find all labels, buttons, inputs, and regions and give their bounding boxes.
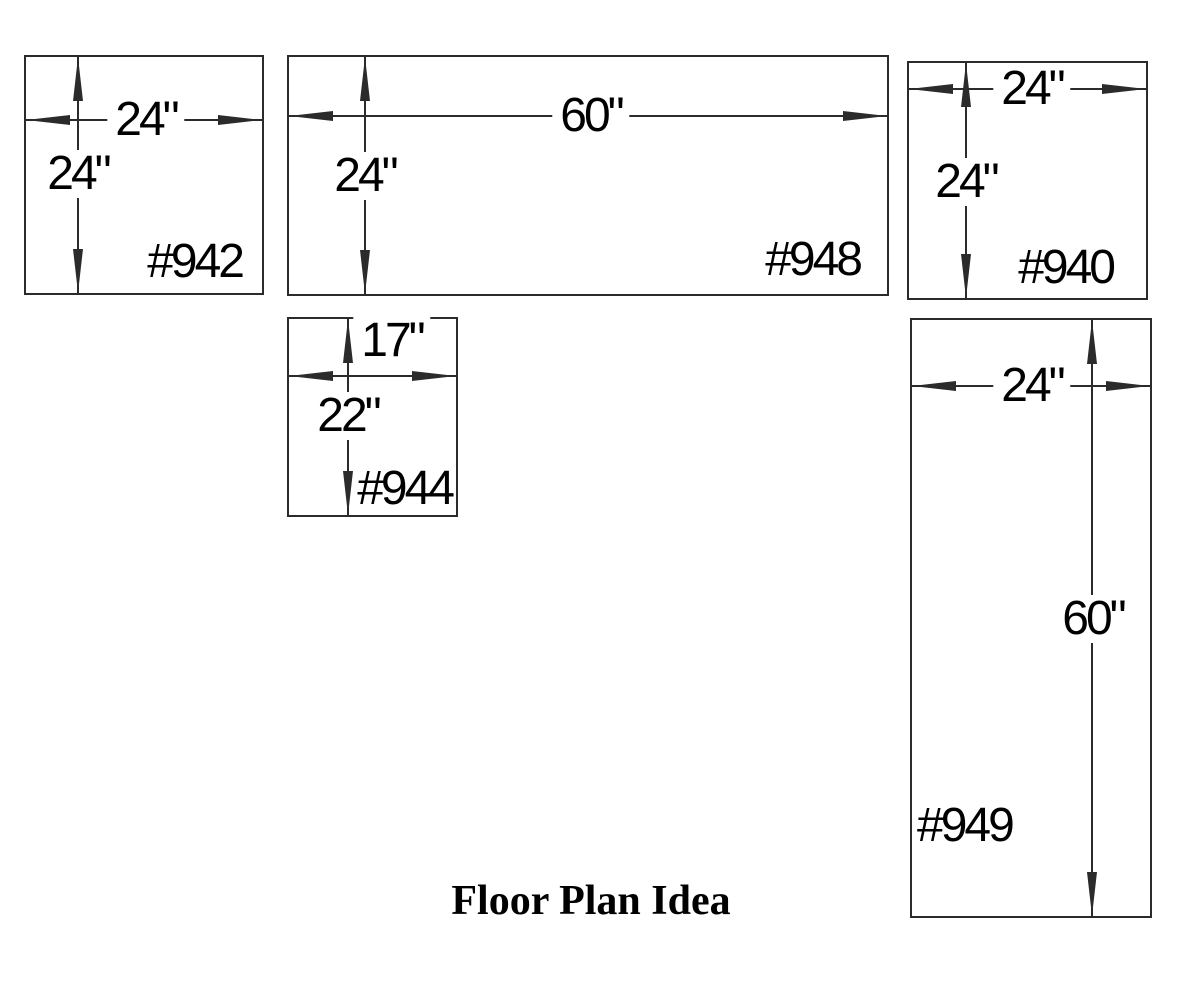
dim-arrow-left-icon [289, 111, 333, 121]
cabinet-940-height-label: 24" [927, 158, 1004, 206]
dim-arrow-up-icon [961, 63, 971, 107]
dim-arrow-up-icon [343, 319, 353, 363]
cabinet-948-width-label: 60" [552, 92, 629, 140]
dim-arrow-left-icon [909, 84, 953, 94]
cabinet-948-height-label: 24" [326, 152, 403, 200]
cabinet-942-height-label: 24" [39, 150, 116, 198]
cabinet-942-id-label: #942 [147, 238, 242, 286]
dim-arrow-up-icon [1087, 320, 1097, 364]
cabinet-940-id-label: #940 [1018, 244, 1113, 292]
cabinet-949-height-label: 60" [1054, 595, 1131, 643]
cabinet-944-id-label: #944 [357, 465, 452, 513]
page-title: Floor Plan Idea [451, 877, 730, 925]
dim-arrow-down-icon [961, 254, 971, 298]
floor-plan-canvas: 24" 24" #942 60" 24" #948 24" 24" #940 [0, 0, 1200, 1000]
dim-arrow-down-icon [343, 471, 353, 515]
dim-arrow-down-icon [73, 249, 83, 293]
cabinet-948-id-label: #948 [765, 236, 860, 284]
dim-arrow-left-icon [289, 371, 333, 381]
dim-arrow-right-icon [1102, 84, 1146, 94]
dim-arrow-left-icon [26, 115, 70, 125]
dim-arrow-right-icon [1106, 381, 1150, 391]
dim-arrow-down-icon [360, 250, 370, 294]
dim-arrow-right-icon [843, 111, 887, 121]
cabinet-944-height-label: 22" [309, 392, 386, 440]
dim-arrow-down-icon [1087, 872, 1097, 916]
dim-arrow-right-icon [218, 115, 262, 125]
cabinet-949-width-label: 24" [993, 362, 1070, 410]
cabinet-940-width-label: 24" [993, 65, 1070, 113]
cabinet-942-width-label: 24" [107, 96, 184, 144]
dim-arrow-left-icon [912, 381, 956, 391]
dim-arrow-up-icon [360, 57, 370, 101]
cabinet-949-id-label: #949 [917, 802, 1012, 850]
dim-arrow-up-icon [73, 57, 83, 101]
cabinet-944-width-label: 17" [353, 317, 430, 365]
dim-arrow-right-icon [412, 371, 456, 381]
